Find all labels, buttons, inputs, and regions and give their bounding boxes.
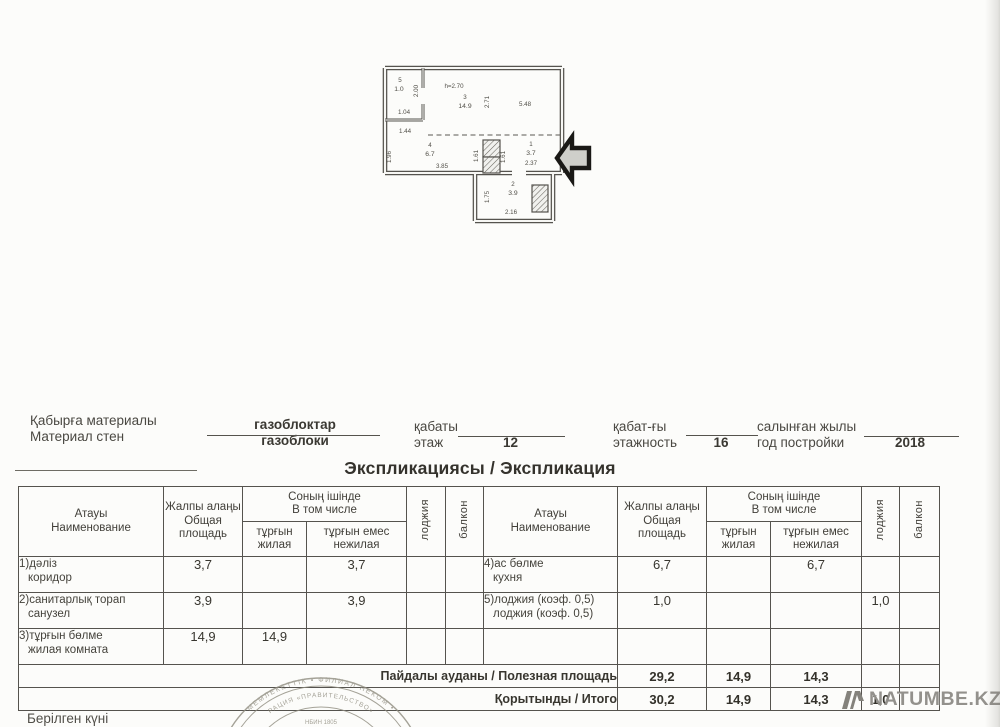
col-header-total-right: Жалпы алаңы Общая площадь [618, 487, 707, 557]
floors-total-label-kk: қабат-ғы [613, 419, 666, 434]
row-loggia [407, 629, 446, 665]
col-name-kk: Атауы [534, 508, 567, 520]
table-row: 3)тұрғын бөлмежилая комната 14,9 14,9 [19, 629, 940, 665]
row-living [707, 593, 771, 629]
wall-material-label-ru: Материал стен [30, 429, 157, 445]
col-including-ru: В том числе [752, 504, 817, 516]
row-name [484, 629, 618, 665]
floor-label-ru: этаж [414, 435, 458, 451]
col-header-loggia-left: лоджия [407, 487, 446, 557]
col-header-loggia-right: лоджия [862, 487, 900, 557]
col-name-ru: Наименование [511, 522, 591, 534]
wall-material-value: газоблоктар газоблоки [210, 417, 380, 448]
col-header-nonliving-right: тұрғын емеснежилая [771, 522, 862, 557]
col-name-kk: Атауы [75, 508, 108, 520]
dim-161-left: 1.61 [473, 149, 480, 162]
stamp-center-text: НБИН 1805 [305, 720, 338, 726]
col-header-living-left: тұрғынжилая [243, 522, 307, 557]
row-loggia [862, 557, 900, 593]
official-round-stamp: МЕМЛЕКЕТТІК • ФИЛИАЛ НЕКОМ • РАЦИЯ «ПРАВ… [196, 662, 446, 727]
col-header-name-right: Атауы Наименование [484, 487, 618, 557]
row-loggia [407, 593, 446, 629]
row-nonliving: 6,7 [771, 557, 862, 593]
wall-material-label: Қабырға материалы Материал стен [30, 413, 157, 444]
row-balcony [446, 557, 484, 593]
col-header-name-left: Атауы Наименование [19, 487, 164, 557]
summary-living: 14,9 [707, 665, 771, 688]
watermark-text: NATUMBE.KZ [869, 688, 1000, 711]
col-header-balcony-right: балкон [900, 487, 940, 557]
row-balcony [446, 593, 484, 629]
build-year-label-kk: салынған жылы [757, 419, 856, 434]
dim-196: 1.96 [386, 150, 393, 163]
row-total: 3,7 [164, 557, 243, 593]
col-total-ru: Общая площадь [638, 515, 686, 541]
col-name-ru: Наименование [51, 522, 131, 534]
row-nonliving [771, 593, 862, 629]
dim-161-right: 1.61 [500, 150, 507, 163]
row-balcony [900, 629, 940, 665]
row-balcony [900, 557, 940, 593]
explication-table: Атауы Наименование Жалпы алаңы Общая пло… [18, 486, 940, 711]
row-balcony [446, 629, 484, 665]
room-4-area: 6.7 [425, 151, 435, 158]
room-2-dim-width: 2.16 [505, 209, 518, 216]
row-name: 5)лоджия (коэф. 0,5)лоджия (коэф. 0,5) [484, 593, 618, 629]
room-1-dim-width: 2.37 [525, 160, 538, 167]
row-name: 4)ас бөлмекухня [484, 557, 618, 593]
col-including-kk: Соның ішінде [288, 491, 361, 503]
col-including-ru: В том числе [292, 504, 357, 516]
room-5-dim-width: 1.04 [398, 109, 411, 116]
room-2-dim-vertical: 1.75 [484, 190, 491, 203]
floor-label-kk: қабаты [414, 419, 458, 434]
row-name: 2)санитарлық торапсанузел [19, 593, 164, 629]
row-loggia [862, 629, 900, 665]
scanned-document-page: 5 1.0 2.00 1.04 1.44 1.96 h=2.70 3 14.9 … [0, 0, 1000, 727]
row-total: 14,9 [164, 629, 243, 665]
summary-row-total: Қорытынды / Итого 30,2 14,9 14,3 1,0 [19, 688, 940, 711]
room-2-area: 3.9 [508, 190, 518, 197]
col-header-including-left: Соның ішінде В том числе [243, 487, 407, 522]
build-year-label-ru: год постройки [757, 435, 856, 451]
col-header-living-right: тұрғынжилая [707, 522, 771, 557]
room-5-area: 1.0 [394, 86, 404, 93]
vent-shafts [483, 140, 548, 212]
summary-total: 30,2 [618, 688, 707, 711]
floor-label: қабаты этаж [414, 419, 458, 450]
col-header-nonliving-left: тұрғын емеснежилая [307, 522, 407, 557]
issued-date-label: Берілген күні [27, 711, 108, 726]
col-header-balcony-left: балкон [446, 487, 484, 557]
row-living [707, 629, 771, 665]
row-loggia [407, 557, 446, 593]
col-header-total-left: Жалпы алаңы Общая площадь [164, 487, 243, 557]
table-row: 2)санитарлық торапсанузел 3,9 3,9 5)лодж… [19, 593, 940, 629]
wall-material-label-kk: Қабырға материалы [30, 413, 157, 428]
ceiling-height-note: h=2.70 [444, 83, 464, 90]
row-living [707, 557, 771, 593]
room-5-number: 5 [398, 77, 402, 84]
room-4-number: 4 [428, 142, 432, 149]
col-including-kk: Соның ішінде [748, 491, 821, 503]
room-1-number: 1 [529, 141, 533, 148]
build-year-value: 2018 [863, 435, 957, 450]
row-total [618, 629, 707, 665]
scan-page-edge [985, 0, 1000, 727]
row-living [243, 593, 307, 629]
watermark: NATUMBE.KZ [841, 688, 1000, 711]
floor-value: 12 [458, 435, 563, 450]
row-total: 6,7 [618, 557, 707, 593]
wall-material-value-kk: газоблоктар [254, 417, 336, 432]
watermark-logo-icon [841, 691, 865, 709]
room-3-dim-vertical: 2.71 [484, 95, 491, 108]
row-living: 14,9 [243, 629, 307, 665]
summary-living: 14,9 [707, 688, 771, 711]
row-balcony [900, 593, 940, 629]
row-loggia: 1,0 [862, 593, 900, 629]
dim-144: 1.44 [399, 128, 412, 135]
build-year-label: салынған жылы год постройки [757, 419, 856, 450]
row-total: 3,9 [164, 593, 243, 629]
col-total-kk: Жалпы алаңы [624, 501, 700, 513]
room-2-number: 2 [511, 181, 515, 188]
svg-text:РАЦИЯ «ПРАВИТЕЛЬСТВО»: РАЦИЯ «ПРАВИТЕЛЬСТВО» [267, 692, 375, 715]
table-row: 1)дәлізкоридор 3,7 3,7 4)ас бөлмекухня 6… [19, 557, 940, 593]
room-3-number: 3 [463, 94, 467, 101]
title-side-line [15, 470, 197, 471]
row-name: 3)тұрғын бөлмежилая комната [19, 629, 164, 665]
summary-row-useful-area: Пайдалы ауданы / Полезная площадь 29,2 1… [19, 665, 940, 688]
room-3-dim-width: 5.48 [519, 101, 532, 108]
summary-nonliving: 14,3 [771, 665, 862, 688]
row-nonliving: 3,9 [307, 593, 407, 629]
row-name: 1)дәлізкоридор [19, 557, 164, 593]
floors-total-label-ru: этажность [613, 435, 677, 451]
col-header-including-right: Соның ішінде В том числе [707, 487, 862, 522]
room-5-dim-vertical: 2.00 [413, 84, 420, 97]
summary-total: 29,2 [618, 665, 707, 688]
col-total-ru: Общая площадь [179, 515, 227, 541]
row-nonliving: 3,7 [307, 557, 407, 593]
floors-total-value: 16 [685, 435, 757, 450]
room-1-area: 3.7 [526, 150, 536, 157]
floors-total-label: қабат-ғы этажность [613, 419, 677, 450]
summary-loggia [862, 665, 900, 688]
floor-plan: 5 1.0 2.00 1.04 1.44 1.96 h=2.70 3 14.9 … [378, 58, 593, 233]
row-nonliving [771, 629, 862, 665]
stamp-inner-arc-text: РАЦИЯ «ПРАВИТЕЛЬСТВО» [267, 692, 375, 715]
row-living [243, 557, 307, 593]
page-title: Экспликациясы / Экспликация [300, 458, 660, 479]
row-nonliving [307, 629, 407, 665]
col-total-kk: Жалпы алаңы [165, 501, 241, 513]
summary-balcony [900, 665, 940, 688]
room-3-area: 14.9 [458, 103, 471, 110]
row-total: 1,0 [618, 593, 707, 629]
room-4-dim-width: 3.85 [436, 163, 449, 170]
